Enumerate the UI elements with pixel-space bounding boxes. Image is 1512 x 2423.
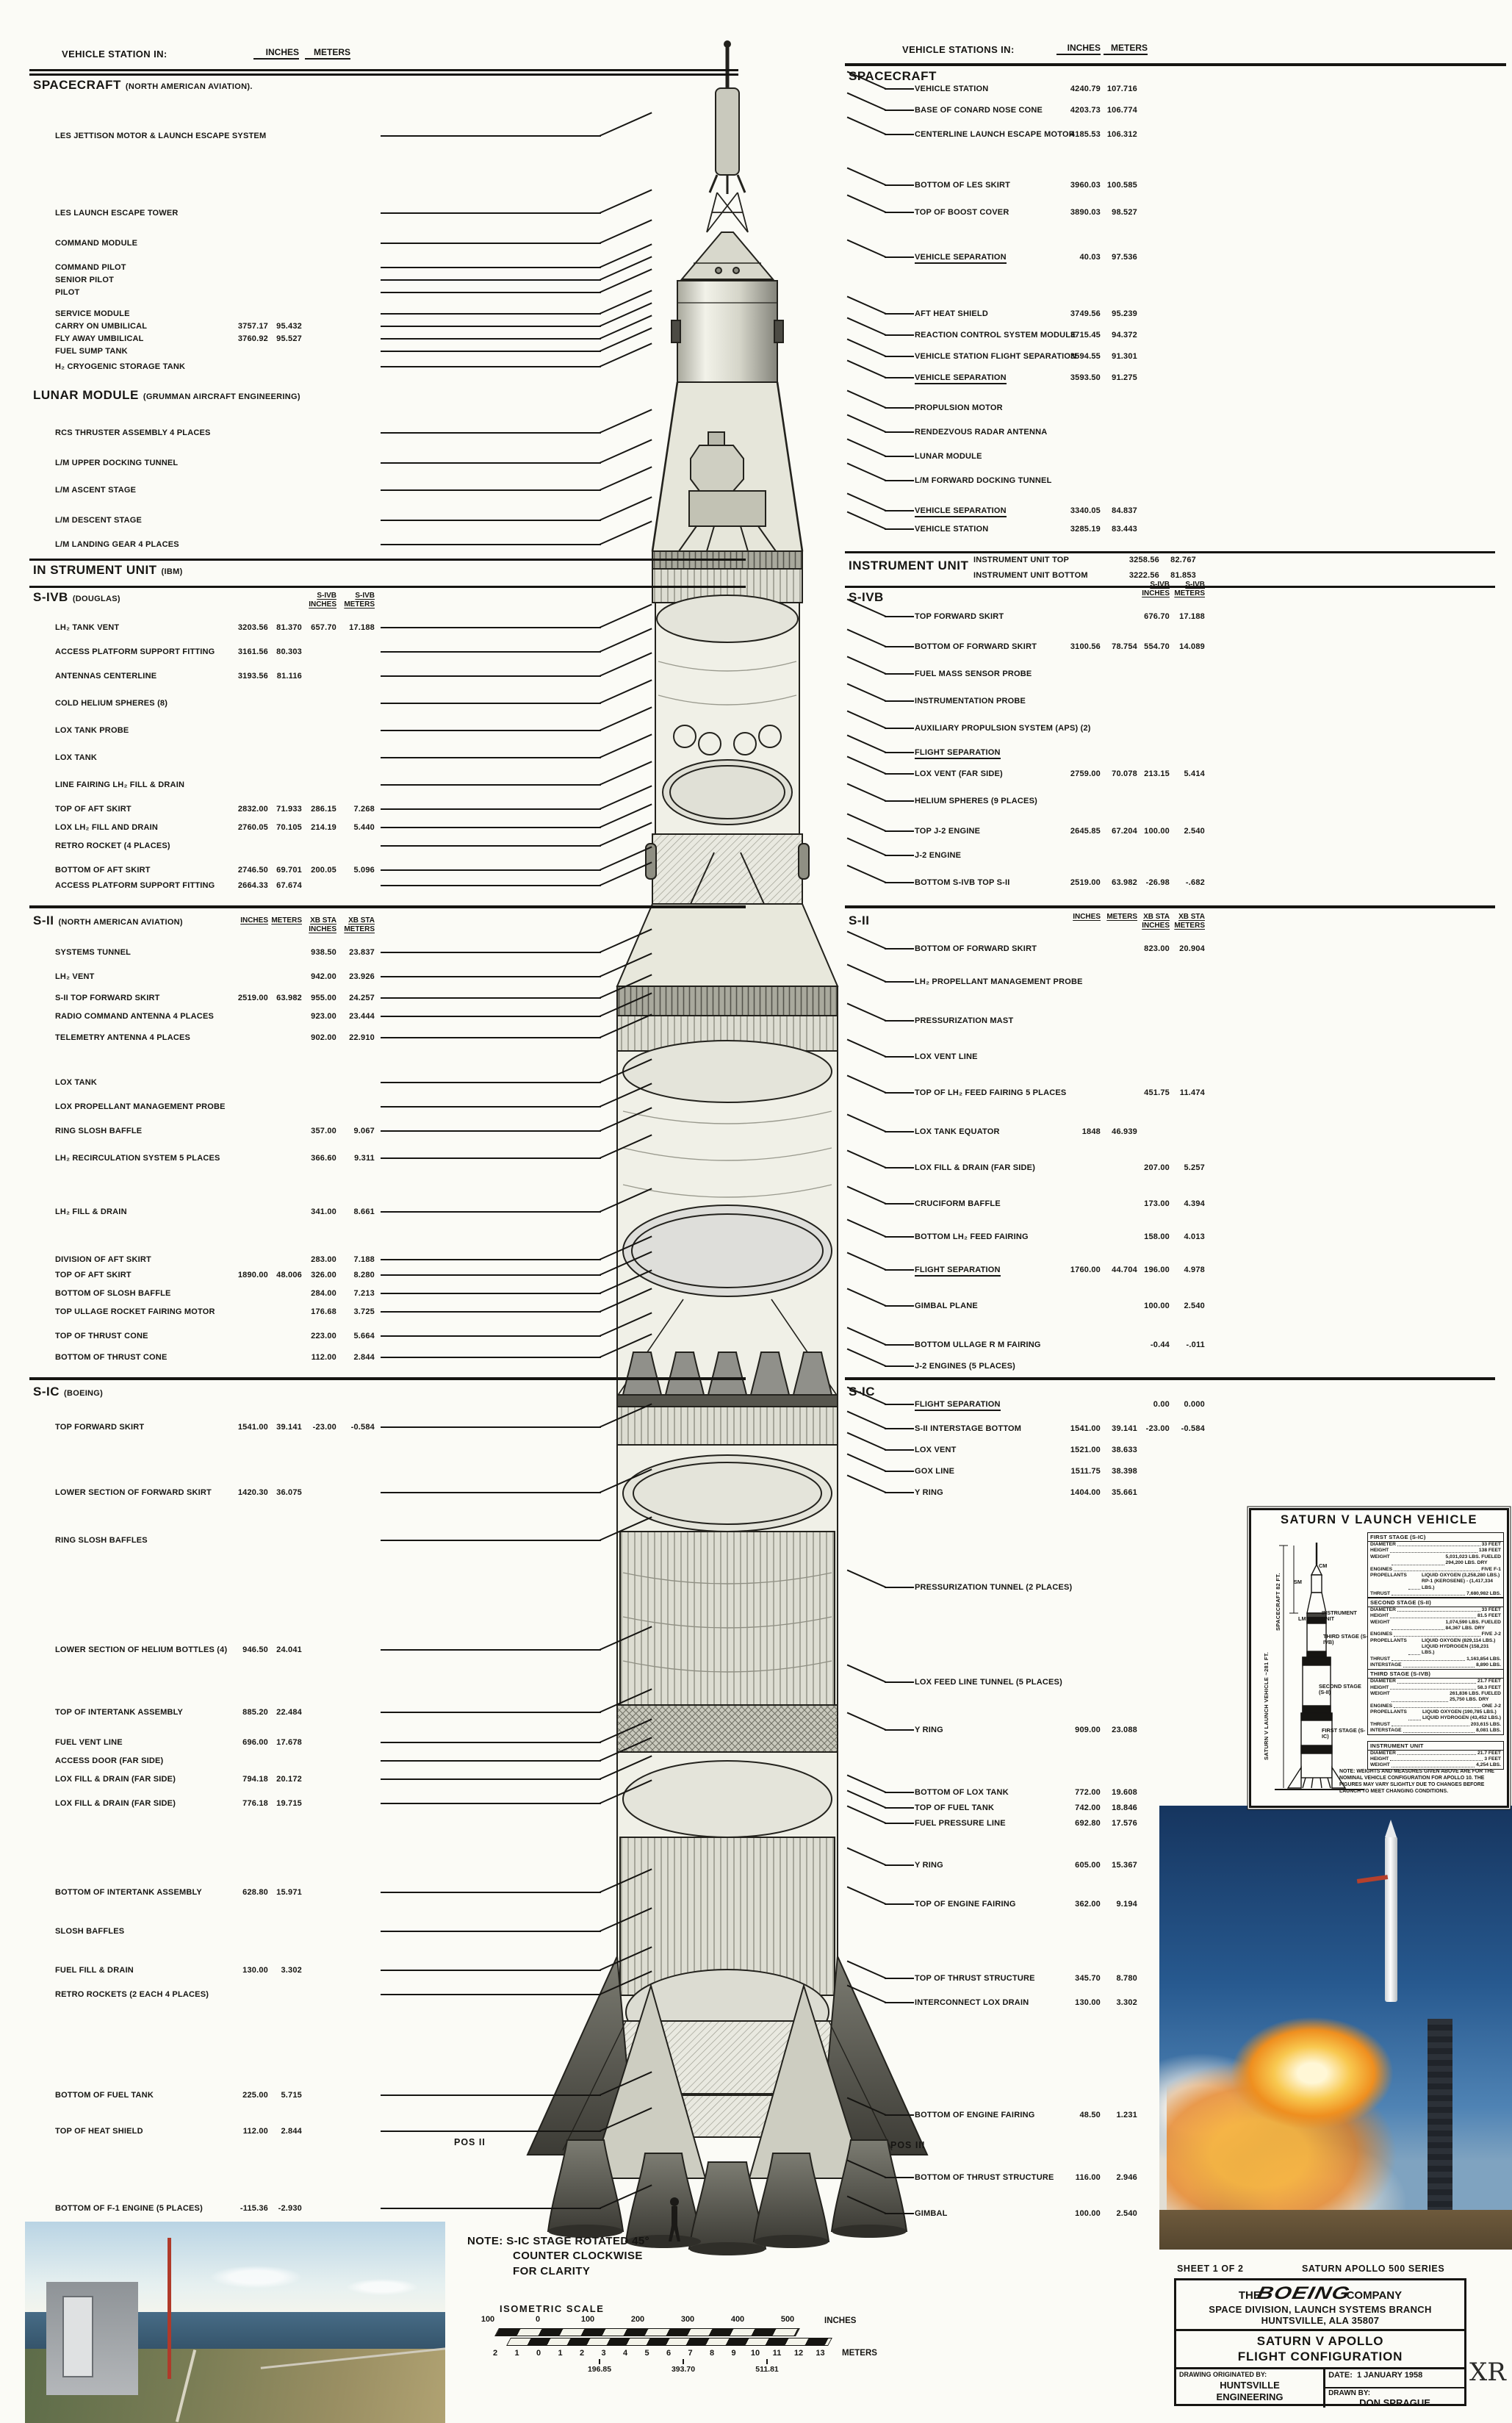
table-row: LOX TANK PROBE: [29, 724, 672, 736]
drawn-by-value: DON SPRAGUE: [1328, 2397, 1461, 2408]
inset-stage-table: SECOND STAGE (S-II)DIAMETER33 FEETHEIGHT…: [1367, 1598, 1504, 1670]
value-c4: 4.978: [1170, 1266, 1205, 1274]
scale-annotation-tick: [599, 2359, 600, 2364]
inset-cell: PROPELLANTS: [1370, 1638, 1407, 1656]
scale-bar-meters: [506, 2338, 832, 2346]
row-label: Y RING: [915, 1861, 943, 1870]
row-label: CRUCIFORM BAFFLE: [915, 1199, 1001, 1208]
row-label: BASE OF CONARD NOSE CONE: [915, 106, 1043, 115]
row-label: RING SLOSH BAFFLES: [55, 1536, 148, 1545]
row-label: RETRO ROCKET (4 PLACES): [55, 841, 170, 850]
inset-callout: CM: [1319, 1563, 1364, 1569]
inset-cell: 138 FEET: [1479, 1548, 1501, 1554]
table-row: L/M ASCENT STAGE: [29, 484, 672, 496]
value-c2: 70.105: [268, 823, 302, 832]
launch-tower-silhouette: [168, 2238, 171, 2379]
row-label: BOTTOM OF FORWARD SKIRT: [915, 944, 1037, 953]
column-head: METERS: [268, 916, 302, 933]
value-c1: 1404.00: [1051, 1488, 1101, 1497]
table-row: LOWER SECTION OF HELIUM BOTTLES (4)946.5…: [29, 1643, 672, 1656]
inset-cell: 8,890 LBS.: [1476, 1662, 1501, 1668]
row-label: LOX VENT: [915, 1446, 957, 1454]
inset-cell: ONE J-2: [1482, 1704, 1501, 1709]
left-header-meters: METERS: [305, 47, 350, 60]
leader-line: [375, 1205, 672, 1218]
row-label: VEHICLE STATION: [915, 85, 988, 93]
originated-by-2: ENGINEERING: [1217, 2391, 1284, 2402]
date-value: 1 JANUARY 1958: [1357, 2371, 1422, 2380]
leader-line: [845, 1786, 915, 1798]
aerial-photo-launch-complex: [25, 2222, 445, 2423]
leader-line: [845, 1443, 915, 1456]
value-c4: 2.844: [336, 1353, 375, 1362]
row-label: INTERCONNECT LOX DRAIN: [915, 1998, 1029, 2007]
table-row: LOX TANK: [29, 1076, 672, 1088]
table-row: FUEL SUMP TANK: [29, 345, 672, 357]
value-c4: -.682: [1170, 878, 1205, 887]
inset-cell: [1390, 1685, 1476, 1690]
table-row: TOP FORWARD SKIRT1541.0039.141-23.00-0.5…: [29, 1421, 672, 1433]
value-c2: 2.844: [268, 2127, 302, 2136]
table-row: LOX FEED LINE TUNNEL (5 PLACES): [845, 1676, 1223, 1688]
inset-stage-row: DIAMETER21.7 FEET: [1368, 1679, 1503, 1684]
leader-line: [845, 206, 915, 218]
inset-cell: DIAMETER: [1370, 1751, 1396, 1756]
inset-stage-row: HEIGHT58.3 FEET: [1368, 1685, 1503, 1691]
leader-line: [845, 767, 915, 780]
value-c1: 3161.56: [218, 647, 268, 656]
value-c2: 106.312: [1101, 130, 1137, 139]
leader-line: [375, 946, 672, 958]
row-label: BOTTOM OF LOX TANK: [915, 1788, 1009, 1797]
value-c3: -23.00: [1137, 1424, 1170, 1433]
inset-stage-row: WEIGHT5,031,023 LBS. FUELED 294,200 LBS.…: [1368, 1554, 1503, 1567]
section-items-s-ivb: LH₂ TANK VENT3203.5681.370657.7017.188AC…: [29, 621, 672, 891]
leader-line: [845, 722, 915, 734]
inset-stage-title: SECOND STAGE (S-II): [1368, 1598, 1503, 1607]
value-c2: 19.715: [268, 1799, 302, 1808]
table-row: SENIOR PILOT: [29, 273, 672, 286]
value-c1: 2664.33: [218, 881, 268, 890]
leader-line: [375, 1988, 672, 2000]
column-head: INCHES: [218, 916, 268, 933]
row-label: L/M UPPER DOCKING TUNNEL: [55, 459, 178, 467]
value-c2: 84.837: [1101, 506, 1137, 515]
value-c2: 98.527: [1101, 208, 1137, 217]
value-c3: 223.00: [302, 1332, 336, 1340]
inset-stage-row: PROPELLANTSLIQUID OXYGEN (3,258,280 LBS.…: [1368, 1573, 1503, 1591]
value-c3: 214.19: [302, 823, 336, 832]
table-row: LUNAR MODULE: [845, 450, 1223, 462]
row-label: LOX FEED LINE TUNNEL (5 PLACES): [915, 1678, 1062, 1687]
inset-stage-table: FIRST STAGE (S-IC)DIAMETER33 FEETHEIGHT1…: [1367, 1532, 1504, 1598]
leader-line: [375, 2089, 672, 2101]
column-head: [1051, 581, 1101, 597]
scale-tick: 0: [536, 2315, 540, 2324]
row-label: FLIGHT SEPARATION: [915, 1400, 1001, 1411]
value-c4: 22.910: [336, 1033, 375, 1042]
value-c2: 91.301: [1101, 352, 1137, 361]
table-row: RING SLOSH BAFFLE357.009.067: [29, 1124, 672, 1137]
table-row: TOP ULLAGE ROCKET FAIRING MOTOR176.683.7…: [29, 1305, 672, 1318]
leader-line: [375, 645, 672, 658]
leader-line: [845, 350, 915, 362]
value-c2: 2.946: [1101, 2173, 1137, 2182]
value-c4: 2.540: [1170, 827, 1205, 836]
row-label: TELEMETRY ANTENNA 4 PLACES: [55, 1033, 190, 1042]
table-row: RENDEZVOUS RADAR ANTENNA: [845, 426, 1223, 438]
scale-tick: 1: [514, 2349, 519, 2358]
sheet-label: SHEET 1 OF 2: [1177, 2264, 1244, 2274]
value-c2: 9.194: [1101, 1900, 1137, 1909]
leader-line: [375, 1124, 672, 1137]
value-c1: 772.00: [1051, 1788, 1101, 1797]
row-label: TOP OF AFT SKIRT: [55, 1271, 132, 1279]
table-row: HELIUM SPHERES (9 PLACES): [845, 794, 1223, 807]
row-label: PROPULSION MOTOR: [915, 403, 1003, 412]
row-label: BOTTOM ULLAGE R M FAIRING: [915, 1340, 1041, 1349]
inset-cell: 203,615 LBS.: [1471, 1722, 1501, 1728]
inset-cell: [1392, 1762, 1475, 1767]
inset-cell: LIQUID OXYGEN (829,114 LBS.) LIQUID HYDR…: [1422, 1638, 1501, 1656]
row-label: TOP OF BOOST COVER: [915, 208, 1009, 217]
value-c3: 923.00: [302, 1012, 336, 1021]
value-c1: 3890.03: [1051, 208, 1101, 217]
section-items-spacecraft: VEHICLE STATION4240.79107.716BASE OF CON…: [845, 82, 1223, 535]
row-label: J-2 ENGINE: [915, 851, 961, 860]
inset-cell: WEIGHT: [1370, 1620, 1390, 1632]
table-row: GIMBAL PLANE100.002.540: [845, 1299, 1223, 1312]
table-row: J-2 ENGINE: [845, 849, 1223, 861]
right-header-rule: [845, 63, 1506, 66]
inset-cell: 4,254 LBS.: [1476, 1762, 1501, 1768]
scale-tick: 2: [580, 2349, 584, 2358]
table-row: LH₂ VENT942.0023.926: [29, 970, 672, 983]
value-c1: 130.00: [1051, 1998, 1101, 2007]
table-row: BOTTOM ULLAGE R M FAIRING-0.44-.011: [845, 1338, 1223, 1351]
scale-tick: 1: [558, 2349, 562, 2358]
value-c3: 200.05: [302, 866, 336, 875]
leader-line: [375, 538, 672, 550]
inset-callout: INSTRUMENT UNIT: [1322, 1610, 1367, 1623]
inset-stage-table: INSTRUMENT UNITDIAMETER21.7 FEETHEIGHT3 …: [1367, 1741, 1504, 1770]
leader-line: [845, 2207, 915, 2219]
scale-tick: 7: [688, 2349, 692, 2358]
leader-line: [845, 569, 915, 581]
value-c1: 3593.50: [1051, 373, 1101, 382]
table-row: RETRO ROCKET (4 PLACES): [29, 839, 672, 852]
column-head: XB STA INCHES: [302, 916, 336, 933]
scale-tick: 0: [536, 2349, 541, 2358]
value-c1: 776.18: [218, 1799, 268, 1808]
table-row: RADIO COMMAND ANTENNA 4 PLACES923.0023.4…: [29, 1010, 672, 1022]
inset-cell: HEIGHT: [1370, 1613, 1389, 1619]
table-row: SLOSH BAFFLES: [29, 1925, 672, 1937]
value-c3: 207.00: [1137, 1163, 1170, 1172]
inset-cell: [1397, 1679, 1476, 1683]
row-label: RCS THRUSTER ASSEMBLY 4 PLACES: [55, 428, 211, 437]
scale-tick: 2: [493, 2349, 497, 2358]
row-label: LES JETTISON MOTOR & LAUNCH ESCAPE SYSTE…: [55, 132, 266, 140]
inset-cell: INTERSTAGE: [1370, 1728, 1402, 1734]
table-row: COMMAND PILOT: [29, 261, 672, 273]
value-c2: 46.939: [1101, 1127, 1137, 1136]
inset-stage-row: THRUST1,163,854 LBS.: [1368, 1656, 1503, 1662]
leader-line: [845, 401, 915, 414]
inset-cell: [1390, 1756, 1483, 1761]
value-c4: 7.268: [336, 805, 375, 814]
address-line: HUNTSVILLE, ALA 35807: [1176, 2315, 1464, 2326]
value-c2: 36.075: [268, 1488, 302, 1497]
inset-stage-table: THIRD STAGE (S-IVB)DIAMETER21.7 FEETHEIG…: [1367, 1669, 1504, 1734]
inset-stage-row: INTERSTAGE8,890 LBS.: [1368, 1662, 1503, 1668]
value-c1: 2645.85: [1051, 827, 1101, 836]
value-c2: 71.933: [268, 805, 302, 814]
scale-tick: 393.70: [672, 2365, 695, 2374]
value-c1: 1541.00: [218, 1423, 268, 1432]
section-rule-s-ic: [29, 1377, 746, 1380]
leader-line: [845, 746, 915, 758]
value-c1: 345.70: [1051, 1974, 1101, 1983]
row-label: VEHICLE SEPARATION: [915, 506, 1007, 517]
leader-line: [375, 778, 672, 791]
table-row: Y RING909.0023.088: [845, 1723, 1223, 1736]
value-c2: 24.041: [268, 1645, 302, 1654]
row-label: COMMAND PILOT: [55, 263, 126, 272]
value-c1: 3594.55: [1051, 352, 1101, 361]
section-title-spacecraft: SPACECRAFT(NORTH AMERICAN AVIATION).: [33, 78, 253, 93]
inset-cell: DIAMETER: [1370, 1542, 1396, 1548]
section-items-s-ic: FLIGHT SEPARATION0.000.000S-II INTERSTAG…: [845, 1398, 1223, 2219]
row-label: BOTTOM S-IVB TOP S-II: [915, 878, 1010, 887]
value-c1: 1420.30: [218, 1488, 268, 1497]
table-row: S-II TOP FORWARD SKIRT2519.0063.982955.0…: [29, 991, 672, 1004]
value-c1: 3749.56: [1051, 309, 1101, 318]
value-c1: 885.20: [218, 1708, 268, 1717]
row-label: RING SLOSH BAFFLE: [55, 1127, 142, 1135]
inset-cell: HEIGHT: [1370, 1548, 1389, 1554]
column-head: [268, 592, 302, 609]
inset-callout: SM: [1294, 1579, 1339, 1585]
value-c4: 9.311: [336, 1154, 375, 1163]
row-label: TOP OF THRUST CONE: [55, 1332, 148, 1340]
inset-callout: FIRST STAGE (S-IC): [1322, 1728, 1367, 1740]
table-row: PROPULSION MOTOR: [845, 401, 1223, 414]
table-row: INSTRUMENT UNIT TOP3258.5682.767: [845, 553, 1223, 566]
value-c3: 955.00: [302, 994, 336, 1002]
row-label: TOP J-2 ENGINE: [915, 827, 980, 836]
table-row: LH₂ FILL & DRAIN341.008.661: [29, 1205, 672, 1218]
value-c4: 7.213: [336, 1289, 375, 1298]
row-label: BOTTOM OF THRUST CONE: [55, 1353, 168, 1362]
row-label: BOTTOM OF F-1 ENGINE (5 PLACES): [55, 2204, 203, 2213]
row-label: AFT HEAT SHIELD: [915, 309, 988, 318]
section-title-suffix: (GRUMMAN AIRCRAFT ENGINEERING): [143, 392, 300, 401]
division-line: SPACE DIVISION, LAUNCH SYSTEMS BRANCH: [1176, 2304, 1464, 2315]
value-c2: 70.078: [1101, 769, 1137, 778]
row-label: FUEL MASS SENSOR PROBE: [915, 670, 1032, 678]
table-row: BOTTOM LH₂ FEED FAIRING158.004.013: [845, 1230, 1223, 1243]
saturn-v-data-inset: SATURN V LAUNCH VEHICLE: [1249, 1508, 1509, 1808]
leader-line: [845, 1230, 915, 1243]
value-c2: 83.443: [1101, 525, 1137, 534]
table-row: CENTERLINE LAUNCH ESCAPE MOTOR4185.53106…: [845, 128, 1223, 140]
value-c2: 63.982: [1101, 878, 1137, 887]
leader-line: [845, 1014, 915, 1027]
value-c1: 3757.17: [218, 322, 268, 331]
table-row: SERVICE MODULE: [29, 307, 672, 320]
row-label: VEHICLE SEPARATION: [915, 373, 1007, 384]
value-c1: 1760.00: [1051, 1266, 1101, 1274]
row-label: RENDEZVOUS RADAR ANTENNA: [915, 428, 1047, 437]
table-row: GOX LINE1511.7538.398: [845, 1465, 1223, 1477]
leader-line: [375, 879, 672, 891]
value-c3: -23.00: [302, 1423, 336, 1432]
row-label: BOTTOM OF SLOSH BAFFLE: [55, 1289, 171, 1298]
value-c1: 225.00: [218, 2091, 268, 2100]
value-c1: 605.00: [1051, 1861, 1101, 1870]
inset-cell: LIQUID OXYGEN (3,258,280 LBS.) RP-1 (KER…: [1422, 1573, 1501, 1591]
row-label: TOP OF THRUST STRUCTURE: [915, 1974, 1035, 1983]
value-c2: 5.715: [268, 2091, 302, 2100]
table-row: BOTTOM OF F-1 ENGINE (5 PLACES)-115.36-2…: [29, 2202, 672, 2214]
inset-cell: [1392, 1591, 1465, 1595]
table-row: ACCESS DOOR (FAR SIDE): [29, 1754, 672, 1767]
table-row: L/M FORWARD DOCKING TUNNEL: [845, 474, 1223, 487]
value-c3: 657.70: [302, 623, 336, 632]
table-row: LOX VENT LINE: [845, 1050, 1223, 1063]
inset-stage-row: DIAMETER33 FEET: [1368, 1542, 1503, 1548]
value-c2: 20.172: [268, 1775, 302, 1784]
row-label: ACCESS PLATFORM SUPPORT FITTING: [55, 881, 215, 890]
table-row: AUXILIARY PROPULSION SYSTEM (APS) (2): [845, 722, 1223, 734]
leader-line: [375, 621, 672, 633]
scale-tick: 10: [751, 2349, 760, 2358]
row-label: GIMBAL: [915, 2209, 948, 2218]
leader-line: [845, 329, 915, 341]
row-label: SLOSH BAFFLES: [55, 1927, 124, 1936]
value-c3: 451.75: [1137, 1088, 1170, 1097]
table-row: FUEL PRESSURE LINE692.8017.576: [845, 1817, 1223, 1829]
row-label: LUNAR MODULE: [915, 452, 982, 461]
row-label: L/M LANDING GEAR 4 PLACES: [55, 540, 179, 549]
value-c2: 67.204: [1101, 827, 1137, 836]
leader-line: [845, 1422, 915, 1435]
leader-line: [845, 1996, 915, 2009]
value-c1: 2519.00: [1051, 878, 1101, 887]
row-label: TOP OF FUEL TANK: [915, 1803, 994, 1812]
row-label: FLIGHT SEPARATION: [915, 1266, 1001, 1277]
row-label: GOX LINE: [915, 1467, 954, 1476]
table-row: ACCESS PLATFORM SUPPORT FITTING3161.5680…: [29, 645, 672, 658]
inset-vehicle-height-dim: SATURN V LAUNCH VEHICLE ~281 FT.: [1263, 1540, 1270, 1760]
value-c4: 8.280: [336, 1271, 375, 1279]
value-c1: 742.00: [1051, 1803, 1101, 1812]
table-row: TOP FORWARD SKIRT676.7017.188: [845, 610, 1223, 622]
inset-stage-row: DIAMETER21.7 FEET: [1368, 1751, 1503, 1756]
value-c4: 5.664: [336, 1332, 375, 1340]
value-c3: 357.00: [302, 1127, 336, 1135]
value-c1: 48.50: [1051, 2111, 1101, 2119]
leader-line: [845, 371, 915, 384]
value-c4: -0.584: [336, 1423, 375, 1432]
drawn-by-label: DRAWN BY:: [1328, 2389, 1370, 2397]
value-c1: 116.00: [1051, 2173, 1101, 2182]
table-row: BASE OF CONARD NOSE CONE4203.73106.774: [845, 104, 1223, 116]
inset-cell: HEIGHT: [1370, 1685, 1389, 1691]
inset-cell: INTERSTAGE: [1370, 1662, 1402, 1668]
table-row: BOTTOM S-IVB TOP S-II2519.0063.982-26.98…: [845, 876, 1223, 889]
value-c1: 909.00: [1051, 1726, 1101, 1734]
leader-line: [375, 2202, 672, 2214]
row-label: VEHICLE SEPARATION: [915, 253, 1007, 264]
value-c1: 2760.05: [218, 823, 268, 832]
leader-line: [375, 426, 672, 439]
table-row: CRUCIFORM BAFFLE173.004.394: [845, 1197, 1223, 1210]
column-head: S-IVB INCHES: [302, 592, 336, 609]
row-label: CARRY ON UMBILICAL: [55, 322, 147, 331]
row-label: LOX PROPELLANT MANAGEMENT PROBE: [55, 1102, 226, 1111]
leader-line: [845, 667, 915, 680]
table-row: INSTRUMENT UNIT BOTTOM3222.5681.853: [845, 569, 1223, 581]
leader-line: [845, 1161, 915, 1174]
leader-line: [845, 474, 915, 487]
value-c1: 3960.03: [1051, 181, 1101, 190]
inset-cell: HEIGHT: [1370, 1756, 1389, 1762]
value-c1: 1511.75: [1051, 1467, 1101, 1476]
section-rule-s-ic: [845, 1377, 1495, 1380]
value-c4: 17.188: [1170, 612, 1205, 621]
inset-callout: SECOND STAGE (S-II): [1319, 1684, 1364, 1696]
scale-tick: 300: [681, 2315, 694, 2324]
leader-line: [375, 514, 672, 526]
value-c2: 106.774: [1101, 106, 1137, 115]
inset-cell: WEIGHT: [1370, 1762, 1390, 1768]
value-c2: 97.536: [1101, 253, 1137, 262]
row-label: LH₂ TANK VENT: [55, 623, 119, 632]
inset-stage-row: HEIGHT81.5 FEET: [1368, 1613, 1503, 1619]
table-row: LOX FILL & DRAIN (FAR SIDE)794.1820.172: [29, 1773, 672, 1785]
inset-cell: [1403, 1728, 1475, 1732]
table-row: Y RING1404.0035.661: [845, 1486, 1223, 1498]
inset-cell: [1408, 1638, 1420, 1655]
value-c1: 2832.00: [218, 805, 268, 814]
table-row: TELEMETRY ANTENNA 4 PLACES902.0022.910: [29, 1031, 672, 1044]
leader-line: [845, 426, 915, 438]
table-row: RETRO ROCKETS (2 EACH 4 PLACES): [29, 1988, 672, 2000]
table-row: BOTTOM OF FORWARD SKIRT823.0020.904: [845, 942, 1223, 955]
value-c1: 4185.53: [1051, 130, 1101, 139]
value-c1: 1521.00: [1051, 1446, 1101, 1454]
value-c2: 39.141: [1101, 1424, 1137, 1433]
value-c3: 366.60: [302, 1154, 336, 1163]
table-row: FUEL MASS SENSOR PROBE: [845, 667, 1223, 680]
table-row: LOX VENT (FAR SIDE)2759.0070.078213.155.…: [845, 767, 1223, 780]
inset-cell: [1390, 1613, 1476, 1618]
value-c4: 20.904: [1170, 944, 1205, 953]
table-row: BOTTOM OF ENGINE FAIRING48.501.231: [845, 2108, 1223, 2121]
table-row: LH₂ RECIRCULATION SYSTEM 5 PLACES366.609…: [29, 1152, 672, 1164]
leader-line: [375, 839, 672, 852]
value-c4: 14.089: [1170, 642, 1205, 651]
table-row: VEHICLE STATION3285.1983.443: [845, 523, 1223, 535]
inset-stage-row: PROPELLANTSLIQUID OXYGEN (829,114 LBS.) …: [1368, 1638, 1503, 1656]
value-c2: 3.302: [268, 1966, 302, 1975]
row-label: AUXILIARY PROPULSION SYSTEM (APS) (2): [915, 724, 1091, 733]
table-row: INTERCONNECT LOX DRAIN130.003.302: [845, 1996, 1223, 2009]
leader-line: [845, 640, 915, 653]
left-header-rule2: [29, 73, 738, 76]
